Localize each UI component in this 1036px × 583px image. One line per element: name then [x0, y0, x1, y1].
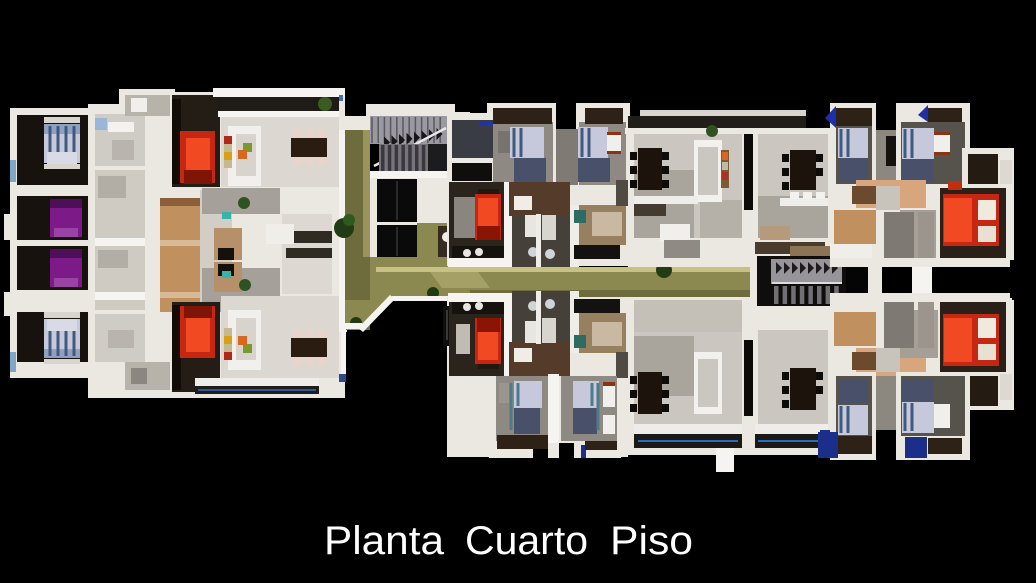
svg-text:Piso: Piso	[610, 519, 693, 563]
svg-text:Planta: Planta	[324, 519, 445, 563]
svg-text:Cuarto: Cuarto	[465, 519, 588, 563]
